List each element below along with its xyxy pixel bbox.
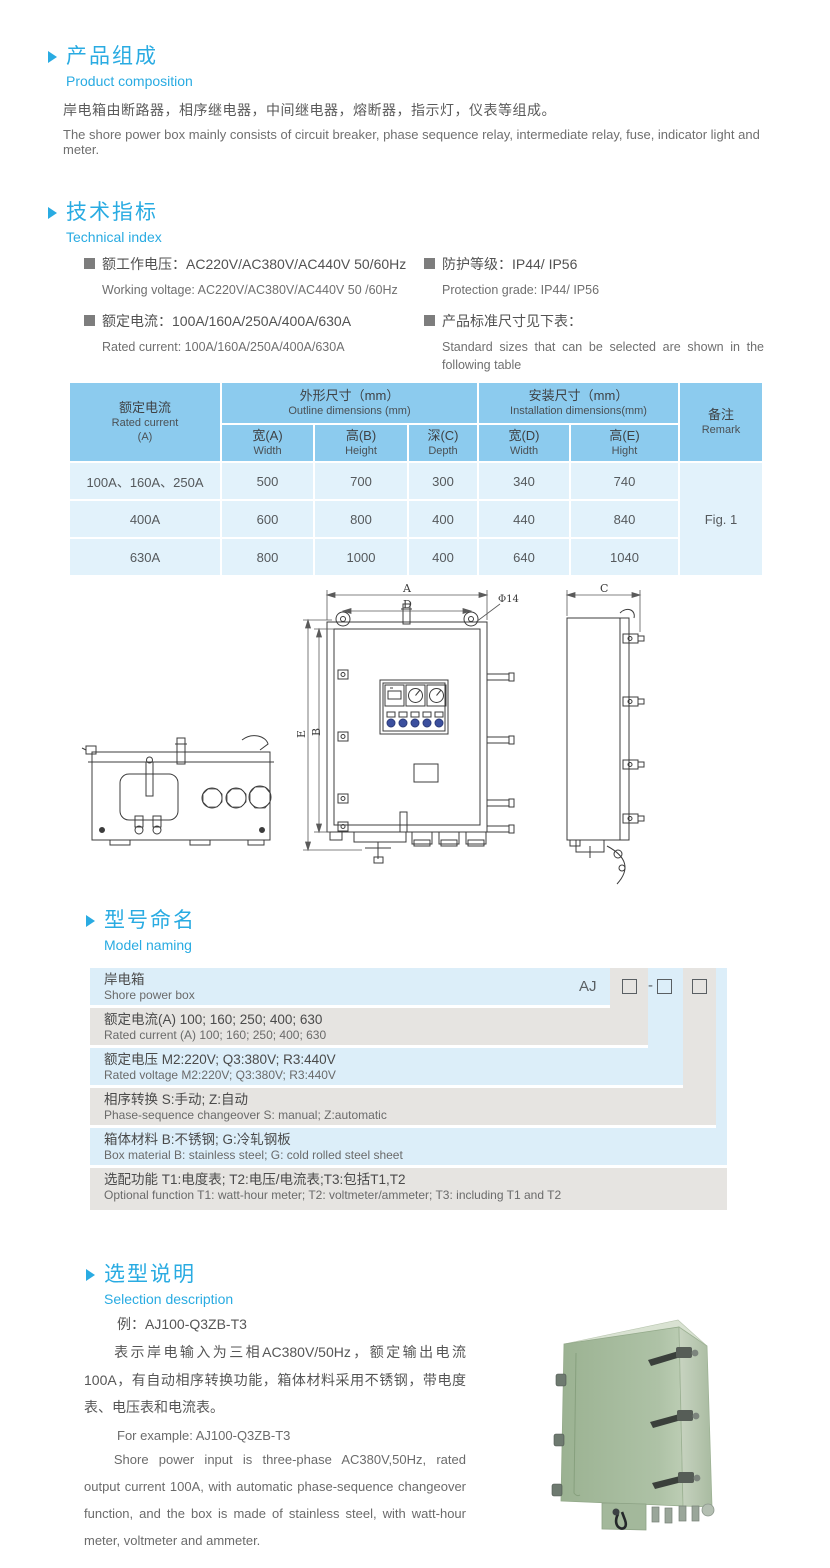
col-header-height-e: 高(E) Hight: [570, 424, 679, 462]
col-group-installation: 安装尺寸（mm） Installation dimensions(mm): [478, 382, 679, 424]
spec-item: 额定电流：100A/160A/250A/400A/630A Rated curr…: [84, 312, 424, 356]
model-row-rated-voltage: 额定电压 M2:220V; Q3:380V; R3:440V Rated vol…: [90, 1048, 683, 1085]
selection-example-en: For example: AJ100-Q3ZB-T3: [84, 1428, 466, 1443]
model-row-phase-sequence: 相序转换 S:手动; Z:自动 Phase-sequence changeove…: [90, 1088, 716, 1125]
model-row-box-material: 箱体材料 B:不锈钢; G:冷轧钢板 Box material B: stain…: [90, 1128, 727, 1165]
model-row-shore-power-box: 岸电箱 Shore power box: [90, 968, 610, 1005]
section-arrow-icon: [48, 51, 57, 63]
model-prefix: AJ: [579, 978, 597, 995]
selection-desc-en: Shore power input is three-phase AC380V,…: [84, 1446, 466, 1554]
square-bullet-icon: [424, 258, 435, 269]
spec-column-left: 额工作电压：AC220V/AC380V/AC440V 50/60Hz Worki…: [84, 255, 424, 369]
spec-item: 防护等级：IP44/ IP56 Protection grade: IP44/ …: [424, 255, 764, 299]
section-header-model-naming: 型号命名 Model naming: [86, 908, 196, 953]
col-group-outline: 外形尺寸（mm） Outline dimensions (mm): [221, 382, 478, 424]
section-title-en: Technical index: [66, 229, 162, 245]
catalog-page: 产品组成 Product composition 岸电箱由断路器，相序继电器，中…: [0, 0, 830, 1568]
section-arrow-icon: [86, 915, 95, 927]
col-header-width-d: 宽(D) Width: [478, 424, 570, 462]
table-row: 630A 800 1000 400 640 1040: [69, 538, 763, 576]
dim-label-e: E: [295, 730, 308, 738]
col-header-rated-current: 额定电流 Rated current (A): [69, 382, 221, 462]
section-arrow-icon: [48, 207, 57, 219]
section-title-zh: 产品组成: [66, 44, 193, 69]
model-code-box-3: [692, 979, 707, 994]
dim-label-d: D: [403, 598, 412, 611]
dim-label-hole: Φ14: [498, 594, 519, 605]
technical-drawing: A D Φ14 E B C: [62, 582, 768, 894]
table-row: 100A、160A、250A 500 700 300 340 740 Fig. …: [69, 462, 763, 500]
section-title-zh: 技术指标: [66, 200, 162, 225]
spec-en: Working voltage: AC220V/AC380V/AC440V 50…: [84, 281, 424, 299]
dim-label-a: A: [402, 582, 412, 595]
col-header-depth-c: 深(C) Depth: [408, 424, 478, 462]
square-bullet-icon: [84, 258, 95, 269]
section-header-technical: 技术指标 Technical index: [48, 200, 162, 245]
spec-zh: 额定电流：100A/160A/250A/400A/630A: [102, 312, 351, 331]
spec-item: 额工作电压：AC220V/AC380V/AC440V 50/60Hz Worki…: [84, 255, 424, 299]
model-row-rated-current: 额定电流(A) 100; 160; 250; 400; 630 Rated cu…: [90, 1008, 648, 1045]
spec-item: 产品标准尺寸见下表： Standard sizes that can be se…: [424, 312, 764, 374]
section-header-composition: 产品组成 Product composition: [48, 44, 193, 89]
section-title-zh: 选型说明: [104, 1262, 233, 1287]
section-title-zh: 型号命名: [104, 908, 196, 933]
dim-label-c: C: [600, 582, 608, 595]
selection-desc-zh: 表示岸电输入为三相AC380V/50Hz，额定输出电流100A，有自动相序转换功…: [84, 1339, 466, 1422]
model-code-dash: -: [648, 977, 653, 994]
spec-en: Protection grade: IP44/ IP56: [424, 281, 764, 299]
spec-en: Standard sizes that can be selected are …: [424, 338, 764, 374]
section-header-selection: 选型说明 Selection description: [86, 1262, 233, 1307]
spec-zh: 防护等级：IP44/ IP56: [442, 255, 577, 274]
model-code-box-2: [657, 979, 672, 994]
product-photo: [548, 1300, 800, 1568]
model-code-box-1: [622, 979, 637, 994]
selection-text-block: 例：AJ100-Q3ZB-T3 表示岸电输入为三相AC380V/50Hz，额定输…: [84, 1314, 466, 1554]
square-bullet-icon: [424, 315, 435, 326]
table-row: 400A 600 800 400 440 840: [69, 500, 763, 538]
col-header-height-b: 高(B) Height: [314, 424, 408, 462]
dim-label-b: B: [310, 728, 323, 736]
remark-cell: Fig. 1: [679, 462, 763, 576]
col-header-remark: 备注 Remark: [679, 382, 763, 462]
section-title-en: Product composition: [66, 73, 193, 89]
model-naming-table: 岸电箱 Shore power box 额定电流(A) 100; 160; 25…: [90, 968, 727, 1210]
section-arrow-icon: [86, 1269, 95, 1281]
spec-zh: 额工作电压：AC220V/AC380V/AC440V 50/60Hz: [102, 255, 406, 274]
selection-example-zh: 例：AJ100-Q3ZB-T3: [84, 1314, 466, 1334]
square-bullet-icon: [84, 315, 95, 326]
section-title-en: Model naming: [104, 937, 196, 953]
section-title-en: Selection description: [104, 1291, 233, 1307]
composition-body-en: The shore power box mainly consists of c…: [63, 127, 783, 157]
col-header-width-a: 宽(A) Width: [221, 424, 314, 462]
model-row-optional-function: 选配功能 T1:电度表; T2:电压/电流表;T3:包括T1,T2 Option…: [90, 1168, 727, 1210]
spec-zh: 产品标准尺寸见下表：: [442, 312, 582, 331]
composition-body-zh: 岸电箱由断路器，相序继电器，中间继电器，熔断器，指示灯，仪表等组成。: [63, 100, 763, 120]
size-table: 额定电流 Rated current (A) 外形尺寸（mm） Outline …: [68, 381, 764, 577]
spec-en: Rated current: 100A/160A/250A/400A/630A: [84, 338, 424, 356]
spec-column-right: 防护等级：IP44/ IP56 Protection grade: IP44/ …: [424, 255, 764, 387]
